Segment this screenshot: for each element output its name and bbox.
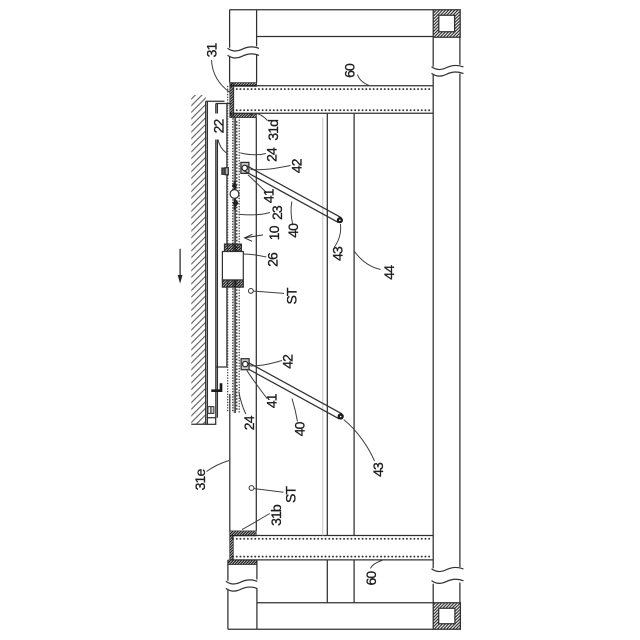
svg-text:60: 60 — [363, 571, 379, 586]
svg-text:44: 44 — [381, 265, 397, 280]
svg-text:23: 23 — [269, 205, 285, 220]
svg-text:60: 60 — [342, 63, 358, 78]
svg-text:31e: 31e — [192, 469, 208, 491]
svg-text:31: 31 — [204, 43, 220, 58]
svg-text:41: 41 — [264, 393, 280, 408]
svg-text:24: 24 — [241, 415, 257, 430]
svg-text:40: 40 — [291, 421, 307, 436]
svg-text:31d: 31d — [265, 120, 281, 141]
svg-text:42: 42 — [280, 354, 296, 369]
svg-text:43: 43 — [370, 462, 386, 477]
svg-text:ST: ST — [283, 287, 299, 304]
svg-text:42: 42 — [288, 158, 304, 173]
svg-text:22: 22 — [210, 119, 226, 134]
svg-text:26: 26 — [265, 252, 281, 267]
svg-text:ST: ST — [282, 486, 298, 503]
svg-text:31b: 31b — [268, 504, 284, 526]
svg-text:41: 41 — [260, 188, 276, 203]
svg-text:40: 40 — [285, 223, 301, 238]
svg-text:43: 43 — [329, 246, 345, 261]
svg-text:10: 10 — [266, 225, 282, 240]
svg-text:24: 24 — [264, 147, 280, 162]
